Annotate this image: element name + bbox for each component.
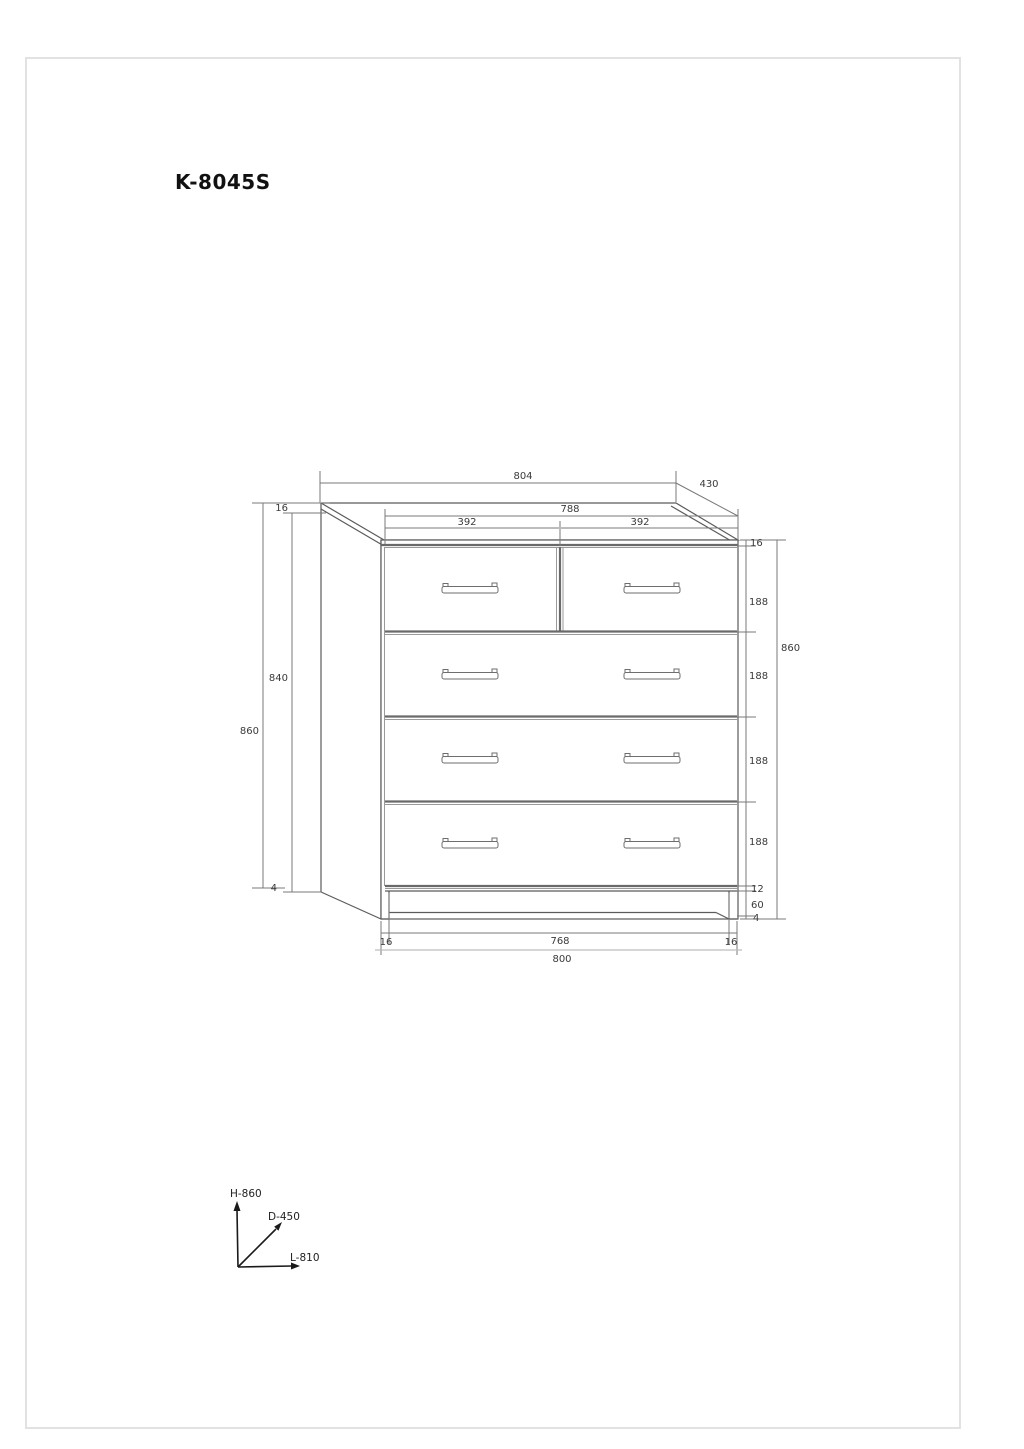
technical-drawing: 804 430 788 392 392 16 840 860 4	[0, 0, 1024, 1449]
dim-depth: 430	[699, 479, 718, 490]
dim-plinth-height: 60	[751, 900, 764, 911]
dim-inner-bottom-width: 768	[550, 936, 569, 947]
dim-top-thickness-left: 16	[275, 503, 288, 514]
dim-under-drawer-gap: 12	[751, 884, 764, 895]
dim-overall-width: 800	[552, 954, 571, 965]
dim-top-panel-width: 804	[513, 471, 532, 482]
cabinet-front-face	[381, 540, 738, 919]
dim-back-foot-height: 4	[271, 883, 277, 894]
length-axis-arrow	[238, 1266, 292, 1267]
depth-axis-arrow	[238, 1229, 276, 1267]
height-axis-arrow	[237, 1210, 238, 1267]
dim-front-width: 788	[560, 504, 579, 515]
dim-top-thickness-right: 16	[750, 538, 763, 549]
axis-legend: H-860 D-450 L-810	[230, 1188, 320, 1270]
length-axis-label: L-810	[290, 1252, 320, 1264]
dim-right-drawer-width: 392	[630, 517, 649, 528]
dim-drawer3-height: 188	[749, 756, 768, 767]
dim-overall-height-right: 860	[781, 643, 800, 654]
dim-right-leg-width: 16	[725, 937, 738, 948]
depth-axis-label: D-450	[268, 1211, 300, 1223]
dim-overall-height-left: 860	[240, 726, 259, 737]
dim-side-panel-height: 840	[269, 673, 288, 684]
dim-drawer2-height: 188	[749, 671, 768, 682]
dim-drawer1-height: 188	[749, 597, 768, 608]
cabinet-side-panel	[321, 503, 381, 919]
dim-left-leg-width: 16	[380, 937, 393, 948]
dim-left-drawer-width: 392	[457, 517, 476, 528]
dimensions-right: 16 188 188 188 188 12 60 4 860	[737, 538, 800, 924]
dim-front-foot-height: 4	[753, 913, 759, 924]
height-axis-label: H-860	[230, 1188, 262, 1200]
dimensions-left: 16 840 860 4	[240, 503, 330, 894]
dim-drawer4-height: 188	[749, 837, 768, 848]
drawing-sheet: K-8045S	[0, 0, 1024, 1449]
